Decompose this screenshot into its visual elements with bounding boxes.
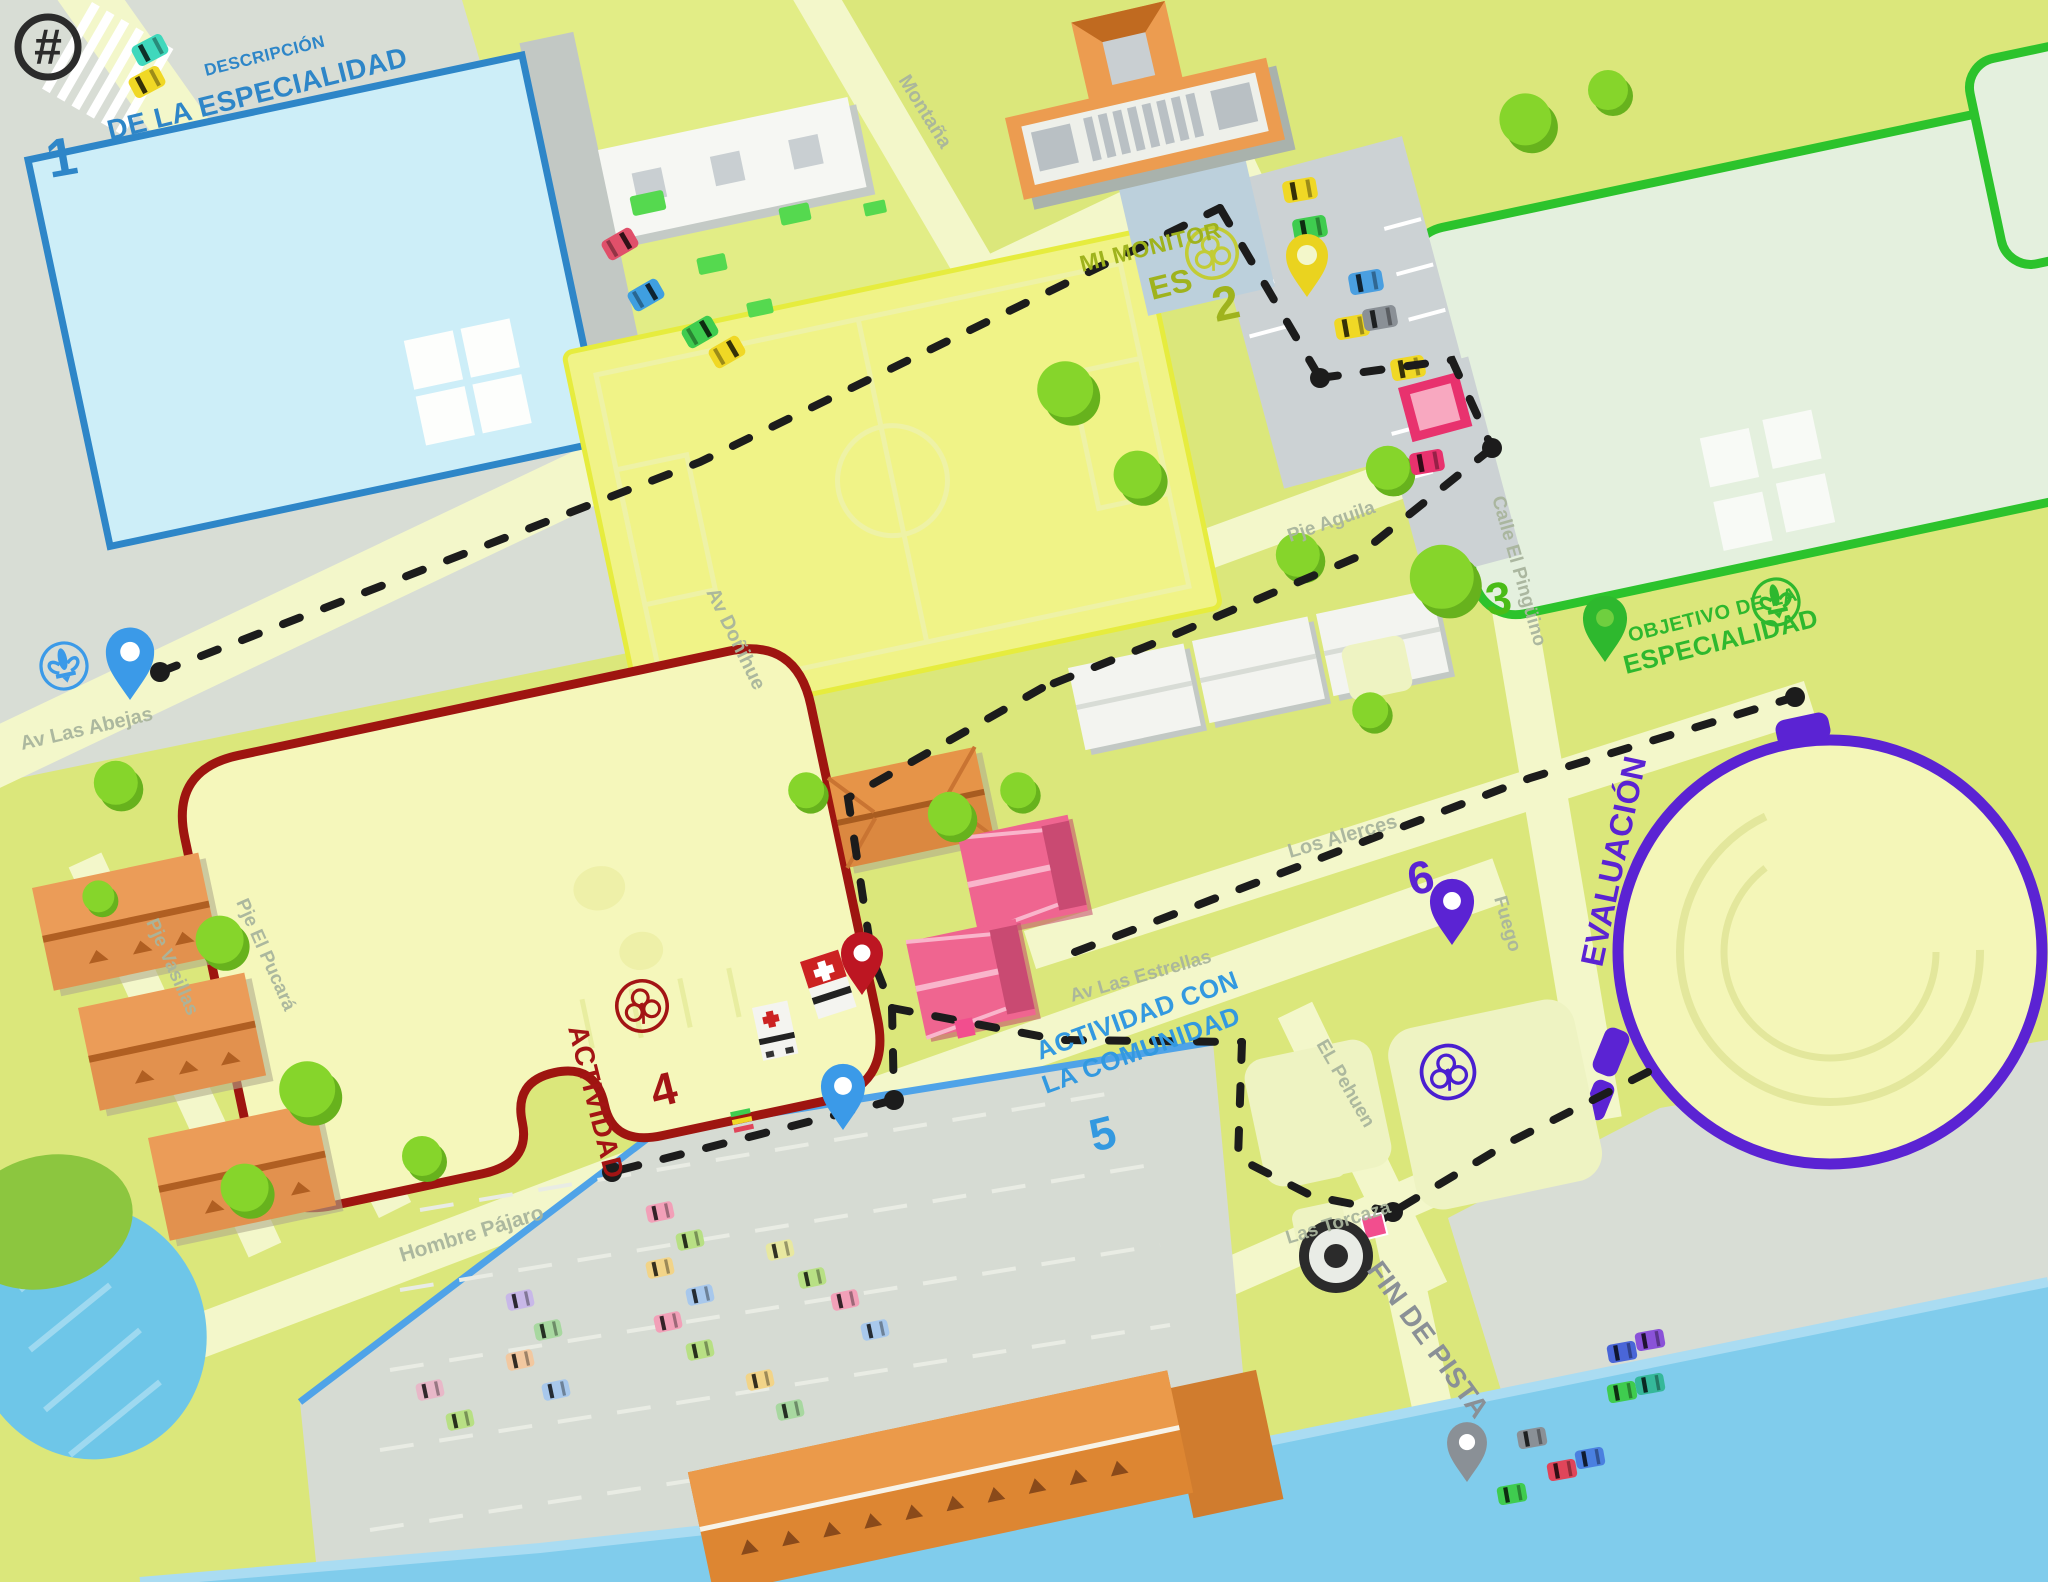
activity-trail-map: # DESCRIPCIÓN DE LA ESPECIALIDAD 1 MI MO… — [0, 0, 2048, 1582]
hash-logo-glyph: # — [34, 19, 62, 75]
